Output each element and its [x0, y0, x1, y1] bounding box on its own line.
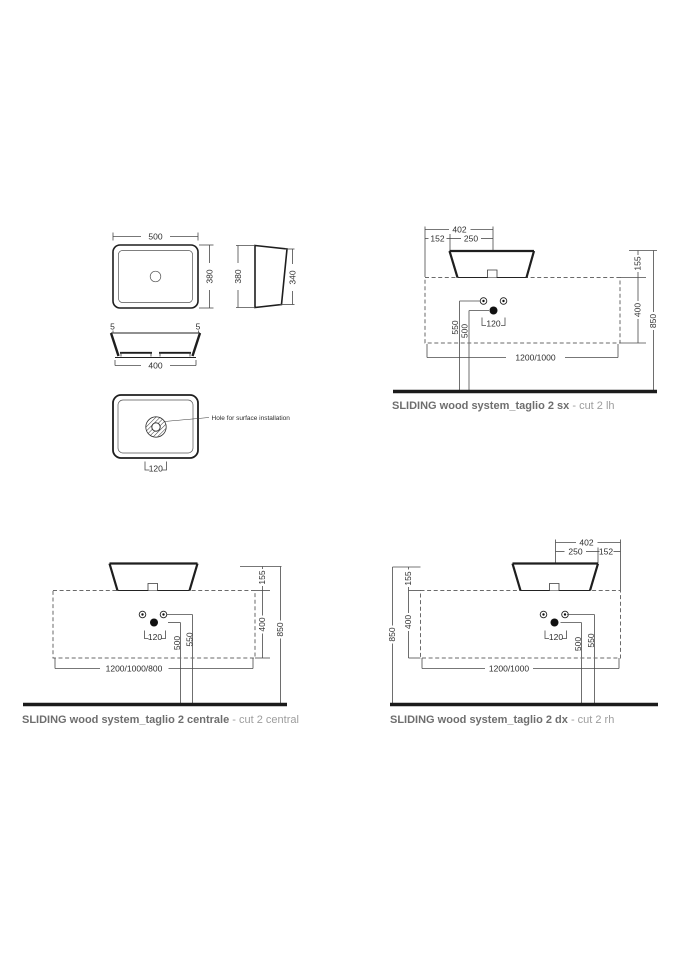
- dim-hole-size: 120: [148, 632, 162, 642]
- dim-counter-height: 400: [633, 303, 643, 317]
- dim-top-right: 152: [599, 547, 613, 557]
- dim-top-right: 250: [464, 234, 478, 244]
- dim-basin-height: 155: [257, 570, 267, 584]
- dim-supply-height: 550: [185, 632, 195, 646]
- supply-points: [480, 298, 507, 315]
- dimension-lines: [145, 615, 193, 705]
- caption-centrale: SLIDING wood system_taglio 2 centrale - …: [22, 714, 299, 727]
- basin-front-view: 5 5 400: [110, 322, 201, 371]
- dim-supply-height: 550: [586, 633, 596, 647]
- dim-top-left: 250: [568, 547, 582, 557]
- dim-counter-height: 400: [403, 615, 413, 629]
- dim-top-width: 500: [148, 232, 162, 242]
- drain-hole-icon: [150, 271, 161, 282]
- tap-notch: [148, 584, 158, 591]
- caption-centrale-title: SLIDING wood system_taglio 2 centrale: [22, 714, 229, 726]
- drain-point-icon: [150, 619, 158, 627]
- leader-line: [165, 418, 210, 422]
- layout-dx: 402 250 152 120 500 550: [387, 538, 658, 705]
- dim-hole-size: 120: [149, 464, 163, 474]
- basin-elevation: [450, 251, 535, 278]
- basin-top-view: 500 380: [113, 232, 215, 309]
- drain-point-icon: [551, 619, 559, 627]
- basin-side-view: 380 340: [233, 246, 298, 308]
- caption-dx-title: SLIDING wood system_taglio 2 dx: [390, 714, 568, 726]
- drain-point-icon: [490, 307, 498, 315]
- basin-bottom-view: Hole for surface installation 120: [113, 395, 290, 474]
- layout-sx: 402 152 250 120 550 500: [393, 225, 658, 392]
- tap-notch: [550, 584, 560, 591]
- caption-centrale-sub: - cut 2 central: [232, 714, 299, 726]
- dim-top-depth: 380: [205, 269, 215, 283]
- dim-total-height: 850: [275, 622, 285, 636]
- dim-total-height: 850: [387, 627, 397, 641]
- dim-hole-size: 120: [486, 319, 500, 329]
- dim-total-height: 850: [648, 314, 658, 328]
- tap-notch: [488, 270, 498, 278]
- supply-points: [139, 611, 167, 626]
- layout-centrale: 120 500 550 155 400 850 1200/1000/800: [23, 564, 287, 705]
- dim-rim-left: 5: [110, 322, 115, 332]
- dim-drain-height: 500: [573, 637, 583, 651]
- dim-basin-height: 155: [403, 571, 413, 585]
- dim-counter-height: 400: [257, 617, 267, 631]
- caption-dx-sub: - cut 2 rh: [571, 714, 614, 726]
- dim-drain-height: 500: [460, 324, 470, 338]
- dim-hole-size: 120: [549, 632, 563, 642]
- technical-drawing-canvas: 500 380 380 340: [0, 0, 675, 960]
- dimension-lines: [460, 301, 506, 391]
- caption-sx-title: SLIDING wood system_taglio 2 sx: [392, 400, 569, 412]
- dim-bottom-width: 400: [148, 361, 162, 371]
- caption-dx: SLIDING wood system_taglio 2 dx - cut 2 …: [390, 714, 614, 727]
- basin-elevation: [110, 564, 198, 591]
- dim-counter-widths: 1200/1000: [489, 664, 529, 674]
- dim-top-left: 152: [430, 234, 444, 244]
- supply-points: [540, 611, 568, 626]
- dim-supply-height: 550: [450, 320, 460, 334]
- dim-counter-widths: 1200/1000/800: [106, 664, 163, 674]
- dim-counter-widths: 1200/1000: [515, 353, 555, 363]
- basin-elevation: [513, 564, 599, 591]
- dim-side-back-height: 340: [288, 270, 298, 284]
- hole-note: Hole for surface installation: [212, 415, 291, 422]
- dim-drain-height: 500: [172, 636, 182, 650]
- dim-basin-height: 155: [633, 256, 643, 270]
- dim-side-height: 380: [233, 269, 243, 283]
- caption-sx-sub: - cut 2 lh: [572, 400, 614, 412]
- spec-sheet: 500 380 380 340: [0, 0, 675, 960]
- product-views: 500 380 380 340: [110, 232, 297, 474]
- caption-sx: SLIDING wood system_taglio 2 sx - cut 2 …: [392, 400, 615, 413]
- dim-rim-right: 5: [196, 322, 201, 332]
- dimension-lines: [545, 615, 595, 705]
